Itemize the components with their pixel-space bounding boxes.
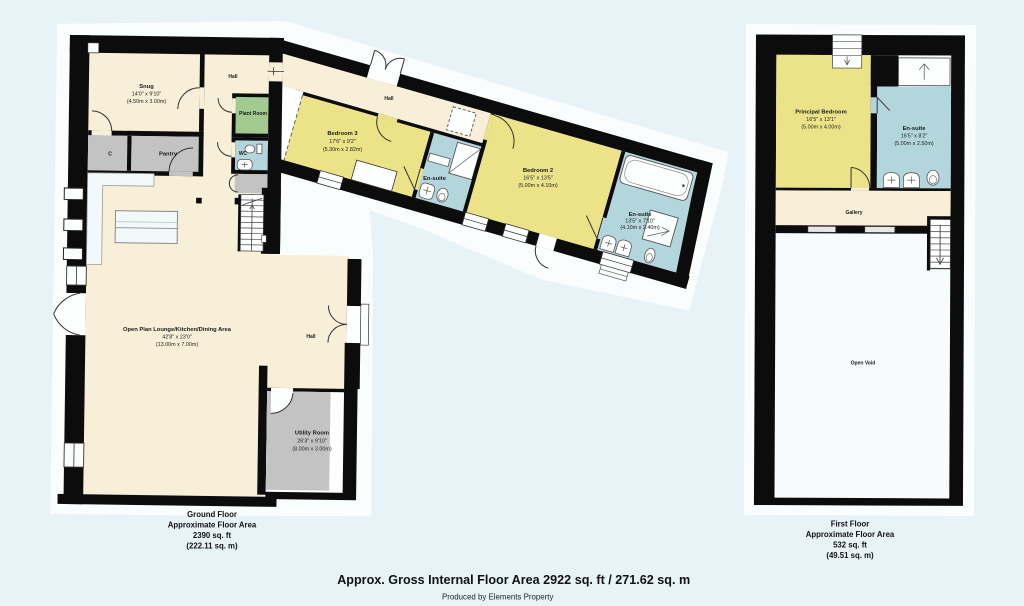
- svg-text:(8.00m x 3.00m): (8.00m x 3.00m): [292, 447, 331, 453]
- svg-text:Gallery: Gallery: [846, 210, 863, 216]
- svg-text:Plant Room: Plant Room: [239, 111, 267, 117]
- svg-text:26'3" x 9'10": 26'3" x 9'10": [297, 439, 327, 445]
- svg-text:Utility Room: Utility Room: [295, 431, 329, 437]
- svg-text:En-suite: En-suite: [629, 212, 653, 218]
- svg-text:Bedroom 2: Bedroom 2: [523, 168, 553, 174]
- svg-text:(49.51 sq. m): (49.51 sq. m): [826, 551, 874, 560]
- svg-text:Ground Floor: Ground Floor: [187, 510, 237, 519]
- svg-text:14'0" x 9'10": 14'0" x 9'10": [132, 92, 162, 98]
- svg-text:16'5" x 13'1": 16'5" x 13'1": [806, 117, 836, 123]
- svg-text:En-suite: En-suite: [423, 176, 447, 182]
- svg-text:First Floor: First Floor: [831, 520, 870, 529]
- svg-text:Principal Bedroom: Principal Bedroom: [795, 110, 847, 116]
- svg-text:Hall: Hall: [384, 96, 394, 102]
- svg-text:En-suite: En-suite: [903, 126, 927, 132]
- svg-text:Pantry: Pantry: [159, 152, 178, 158]
- svg-text:Approx. Gross Internal Floor A: Approx. Gross Internal Floor Area 2922 s…: [337, 573, 690, 587]
- svg-text:16'5" x 8'2": 16'5" x 8'2": [901, 134, 928, 140]
- svg-text:13'5" x 7'10": 13'5" x 7'10": [625, 219, 655, 225]
- svg-text:C: C: [108, 152, 112, 158]
- svg-text:Open Plan Lounge/Kitchen/Dinin: Open Plan Lounge/Kitchen/Dining Area: [123, 327, 232, 333]
- svg-text:Hall: Hall: [306, 334, 316, 340]
- svg-text:(5.00m x 2.50m): (5.00m x 2.50m): [894, 141, 933, 147]
- svg-text:Produced by Elements Property: Produced by Elements Property: [442, 593, 553, 602]
- svg-text:(5.30m x 2.82m): (5.30m x 2.82m): [323, 147, 362, 153]
- svg-text:(13.00m x 7.00m): (13.00m x 7.00m): [156, 342, 198, 348]
- svg-text:532 sq. ft: 532 sq. ft: [833, 541, 867, 550]
- svg-text:17'6" x 9'2": 17'6" x 9'2": [329, 139, 356, 145]
- svg-text:(4.50m x 3.00m): (4.50m x 3.00m): [127, 99, 166, 105]
- svg-text:Snug: Snug: [139, 84, 154, 90]
- svg-text:(4.10m x 2.40m): (4.10m x 2.40m): [620, 225, 659, 231]
- svg-text:16'5" x 13'5": 16'5" x 13'5": [523, 176, 553, 182]
- svg-text:Bedroom 3: Bedroom 3: [327, 131, 358, 137]
- svg-text:(5.00m x 4.00m): (5.00m x 4.00m): [801, 125, 840, 131]
- svg-text:(222.11 sq. m): (222.11 sq. m): [186, 542, 238, 551]
- svg-text:Hall: Hall: [228, 74, 238, 80]
- svg-text:2390 sq. ft: 2390 sq. ft: [193, 531, 232, 540]
- svg-text:Approximate Floor Area: Approximate Floor Area: [168, 521, 257, 530]
- svg-text:Open Void: Open Void: [851, 361, 876, 367]
- svg-text:WC: WC: [239, 151, 248, 157]
- svg-text:42'8" x 23'0": 42'8" x 23'0": [162, 335, 192, 341]
- svg-text:Approximate Floor Area: Approximate Floor Area: [806, 530, 895, 539]
- svg-text:(5.00m x 4.10m): (5.00m x 4.10m): [518, 183, 557, 189]
